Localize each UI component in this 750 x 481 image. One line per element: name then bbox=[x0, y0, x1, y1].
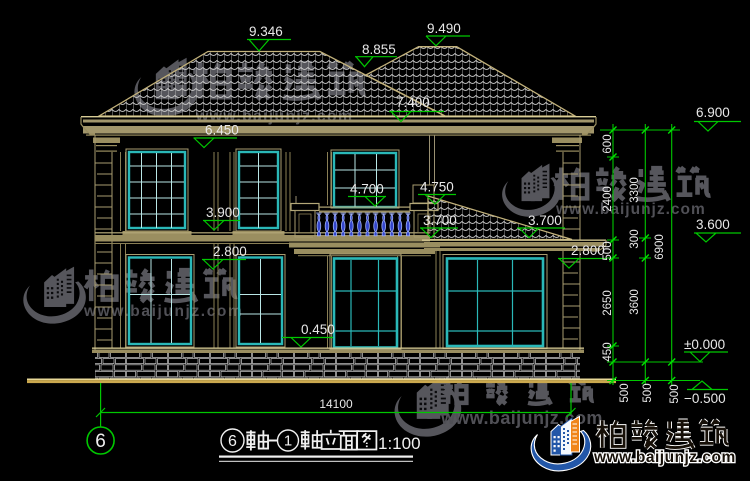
svg-text:500: 500 bbox=[642, 383, 654, 402]
svg-text:9.346: 9.346 bbox=[249, 24, 283, 39]
svg-text:3.900: 3.900 bbox=[206, 205, 240, 220]
svg-text:www.baijunjz.com: www.baijunjz.com bbox=[83, 303, 243, 320]
svg-text:4.750: 4.750 bbox=[420, 180, 454, 195]
svg-text:www.baijunjz.com: www.baijunjz.com bbox=[593, 449, 736, 466]
svg-text:500: 500 bbox=[602, 241, 614, 260]
svg-text:2650: 2650 bbox=[602, 290, 614, 316]
svg-text:3.600: 3.600 bbox=[696, 217, 730, 232]
svg-text:2400: 2400 bbox=[602, 186, 614, 212]
svg-text:4.700: 4.700 bbox=[350, 182, 384, 197]
svg-text:450: 450 bbox=[602, 342, 614, 361]
svg-text:7.400: 7.400 bbox=[396, 95, 430, 110]
svg-text:500: 500 bbox=[619, 383, 631, 402]
svg-text:3600: 3600 bbox=[629, 289, 641, 315]
svg-text:300: 300 bbox=[629, 229, 641, 248]
svg-text:6: 6 bbox=[95, 431, 106, 452]
svg-text:14100: 14100 bbox=[319, 397, 353, 411]
svg-text:±0.000: ±0.000 bbox=[684, 337, 725, 352]
svg-text:8.855: 8.855 bbox=[362, 42, 396, 57]
svg-text:6: 6 bbox=[228, 433, 237, 450]
svg-text:500: 500 bbox=[669, 384, 681, 403]
svg-text:6.450: 6.450 bbox=[205, 123, 239, 138]
svg-text:2.800: 2.800 bbox=[213, 244, 247, 259]
svg-text:1:100: 1:100 bbox=[378, 434, 421, 453]
svg-text:3.700: 3.700 bbox=[423, 213, 457, 228]
svg-text:3300: 3300 bbox=[629, 177, 641, 203]
svg-text:600: 600 bbox=[602, 134, 614, 153]
svg-text:−0.500: −0.500 bbox=[684, 391, 726, 406]
svg-text:2.800: 2.800 bbox=[571, 243, 605, 258]
svg-text:9.490: 9.490 bbox=[427, 21, 461, 36]
svg-text:6900: 6900 bbox=[654, 234, 666, 260]
svg-text:1: 1 bbox=[284, 433, 292, 450]
svg-text:3.700: 3.700 bbox=[528, 213, 562, 228]
svg-text:6.900: 6.900 bbox=[696, 105, 730, 120]
svg-text:0.450: 0.450 bbox=[301, 322, 335, 337]
